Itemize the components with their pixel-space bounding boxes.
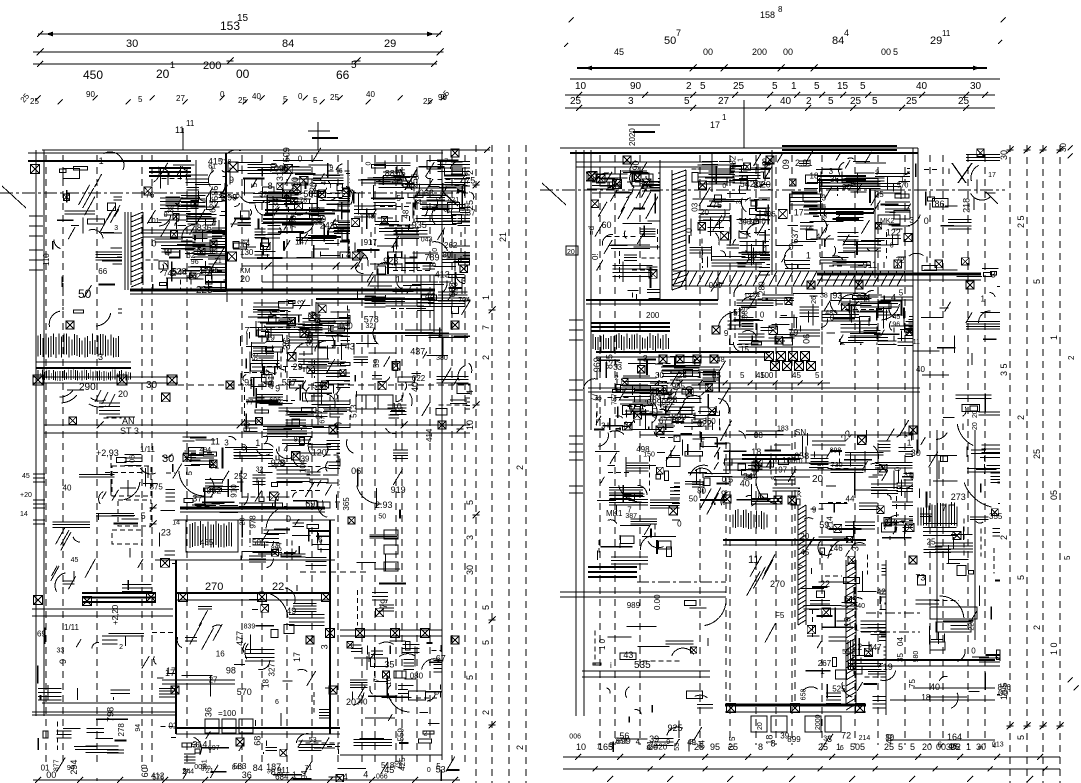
svg-text:2020: 2020 [628, 128, 637, 146]
svg-text:2: 2 [481, 355, 491, 360]
svg-text:1: 1 [806, 251, 811, 261]
svg-text:006: 006 [569, 733, 581, 740]
svg-text:20: 20 [700, 208, 709, 217]
svg-text:90: 90 [86, 90, 95, 99]
svg-text:100: 100 [708, 280, 722, 289]
svg-text:17: 17 [166, 666, 176, 676]
svg-text:5: 5 [728, 736, 737, 741]
svg-text:30: 30 [655, 371, 664, 380]
svg-text:9: 9 [58, 659, 68, 664]
svg-text:686: 686 [210, 186, 220, 201]
svg-text:360: 360 [702, 417, 716, 426]
svg-text:45: 45 [614, 47, 624, 57]
svg-text:KM: KM [240, 268, 251, 275]
svg-text:4: 4 [321, 181, 328, 185]
svg-text:29: 29 [384, 38, 396, 50]
svg-text:01: 01 [152, 218, 160, 225]
svg-text:022: 022 [412, 374, 426, 383]
svg-text:4: 4 [183, 768, 190, 772]
svg-text:146: 146 [607, 180, 622, 190]
svg-text:9: 9 [875, 169, 879, 176]
svg-text:F5: F5 [775, 611, 785, 620]
svg-text:18: 18 [262, 679, 271, 688]
svg-text:899: 899 [787, 735, 801, 744]
svg-text:89: 89 [271, 546, 279, 553]
svg-text:30: 30 [162, 453, 174, 465]
svg-text:22: 22 [852, 642, 862, 652]
svg-text:044: 044 [857, 293, 871, 302]
svg-text:5: 5 [860, 81, 866, 92]
svg-text:252: 252 [234, 472, 248, 481]
svg-text:494: 494 [199, 447, 211, 454]
svg-text:5: 5 [481, 640, 491, 645]
svg-text:080: 080 [410, 671, 424, 680]
svg-text:59: 59 [372, 358, 381, 367]
svg-text:30: 30 [126, 38, 138, 50]
svg-text:32: 32 [256, 466, 264, 473]
svg-text:0: 0 [830, 313, 835, 322]
svg-text:0: 0 [677, 520, 682, 529]
svg-text:MK1: MK1 [606, 509, 623, 518]
svg-text:40: 40 [63, 484, 72, 493]
svg-text:110: 110 [42, 253, 51, 266]
svg-text:5: 5 [465, 675, 475, 680]
svg-text:25: 25 [1032, 449, 1042, 459]
svg-text:0: 0 [152, 239, 157, 249]
svg-text:0: 0 [140, 764, 149, 769]
svg-text:2: 2 [1067, 355, 1076, 360]
svg-text:10: 10 [795, 458, 803, 465]
svg-text:57: 57 [259, 192, 267, 199]
svg-text:01: 01 [41, 763, 50, 772]
svg-text:25: 25 [927, 537, 936, 546]
svg-text:77: 77 [246, 400, 254, 407]
svg-text:25: 25 [570, 96, 582, 107]
svg-text:5: 5 [684, 96, 690, 107]
svg-text:5: 5 [740, 371, 745, 380]
svg-text:9: 9 [666, 739, 670, 746]
svg-text:00: 00 [881, 47, 891, 57]
svg-text:7: 7 [942, 503, 947, 513]
svg-text:11: 11 [175, 125, 184, 135]
svg-text:771: 771 [327, 319, 337, 334]
svg-text:3: 3 [267, 770, 274, 774]
svg-text:5: 5 [910, 742, 915, 752]
svg-text:25: 25 [728, 742, 738, 752]
svg-text:i: i [610, 661, 612, 670]
svg-text:5: 5 [676, 376, 681, 386]
svg-text:20: 20 [800, 532, 809, 541]
svg-text:535: 535 [634, 660, 651, 671]
svg-text:15: 15 [816, 461, 825, 470]
svg-text:53: 53 [436, 765, 446, 775]
svg-text:1 0: 1 0 [1049, 642, 1059, 655]
svg-text:164: 164 [947, 732, 962, 742]
svg-text:25: 25 [818, 742, 828, 752]
svg-text:25: 25 [950, 742, 960, 752]
svg-text:2 5: 2 5 [1016, 215, 1026, 228]
svg-text:40: 40 [930, 682, 940, 692]
svg-text:34: 34 [738, 217, 747, 226]
svg-text:1: 1 [481, 295, 491, 300]
svg-text:3: 3 [822, 194, 827, 203]
svg-text:8: 8 [778, 5, 783, 14]
svg-text:6: 6 [415, 174, 419, 181]
svg-text:25: 25 [330, 93, 339, 102]
svg-text:2: 2 [424, 731, 428, 738]
svg-text:45: 45 [792, 371, 801, 380]
svg-text:413: 413 [435, 270, 450, 280]
svg-text:20: 20 [240, 274, 250, 284]
svg-text:40: 40 [916, 81, 928, 92]
svg-text:1 0: 1 0 [598, 638, 607, 650]
svg-text:27: 27 [176, 94, 185, 103]
svg-text:2: 2 [999, 535, 1009, 540]
svg-text:583: 583 [233, 762, 247, 771]
svg-text:183: 183 [649, 394, 661, 401]
svg-text:45: 45 [71, 557, 79, 564]
svg-text:3: 3 [114, 225, 118, 232]
svg-text:5: 5 [138, 95, 143, 104]
svg-text:0: 0 [298, 92, 303, 101]
svg-text:05: 05 [875, 190, 884, 199]
svg-text:9: 9 [275, 384, 280, 394]
svg-text:278: 278 [117, 723, 126, 737]
svg-text:0: 0 [685, 386, 695, 391]
svg-text:3: 3 [829, 167, 834, 176]
svg-text:013: 013 [992, 741, 1004, 748]
svg-text:96: 96 [892, 322, 900, 329]
svg-text:09: 09 [781, 159, 791, 169]
svg-text:75: 75 [465, 175, 475, 185]
svg-text:1: 1 [722, 113, 727, 122]
svg-text:11: 11 [942, 29, 951, 38]
svg-text:2: 2 [686, 81, 692, 92]
svg-text:+2,20: +2,20 [111, 604, 120, 625]
svg-text:978: 978 [248, 515, 257, 529]
svg-text:50: 50 [664, 35, 676, 47]
svg-text:6: 6 [595, 396, 604, 401]
svg-text:2000: 2000 [815, 714, 822, 730]
svg-text:86: 86 [935, 199, 945, 209]
svg-text:91: 91 [209, 461, 219, 471]
svg-text:4: 4 [636, 738, 641, 747]
svg-text:25: 25 [423, 97, 432, 106]
svg-text:69: 69 [37, 629, 46, 638]
svg-text:6: 6 [890, 243, 894, 250]
svg-text:43: 43 [623, 650, 633, 660]
svg-text:1: 1 [170, 60, 175, 70]
svg-text:30: 30 [146, 380, 158, 391]
svg-text:8: 8 [771, 739, 776, 749]
svg-text:4: 4 [398, 762, 403, 771]
svg-text:10: 10 [576, 742, 586, 752]
svg-text:40: 40 [252, 92, 261, 101]
svg-text:5: 5 [185, 471, 194, 476]
svg-text:183: 183 [777, 425, 789, 432]
svg-text:84: 84 [832, 35, 844, 47]
svg-text:207: 207 [346, 697, 361, 707]
svg-text:53: 53 [309, 737, 317, 744]
svg-text:3 5: 3 5 [999, 363, 1009, 376]
svg-text:5: 5 [872, 96, 878, 107]
svg-text:14: 14 [172, 519, 180, 526]
svg-text:56: 56 [619, 731, 629, 741]
svg-text:4: 4 [816, 233, 820, 240]
svg-text:730: 730 [831, 462, 843, 469]
svg-text:05: 05 [1049, 490, 1059, 500]
svg-text:2: 2 [481, 710, 491, 715]
svg-text:2: 2 [615, 375, 619, 382]
svg-text:37: 37 [278, 768, 285, 776]
svg-text:570: 570 [237, 687, 252, 697]
svg-text:0: 0 [760, 311, 765, 320]
svg-text:00: 00 [936, 742, 946, 752]
svg-text:14: 14 [20, 511, 28, 518]
svg-text:30: 30 [465, 565, 475, 575]
svg-text:20: 20 [648, 742, 658, 752]
svg-text:935: 935 [412, 220, 427, 230]
svg-text:1: 1 [820, 667, 825, 676]
svg-text:5: 5 [351, 60, 357, 71]
svg-text:=d: =d [587, 226, 596, 235]
svg-text:3: 3 [909, 216, 914, 225]
svg-text:19: 19 [883, 662, 893, 672]
svg-text:37: 37 [904, 472, 912, 479]
svg-text:73: 73 [915, 573, 925, 583]
svg-text:=100: =100 [218, 709, 237, 718]
svg-text:25: 25 [906, 96, 918, 107]
svg-text:72: 72 [841, 731, 851, 741]
svg-text:477: 477 [235, 631, 245, 646]
svg-text:4: 4 [844, 28, 849, 38]
svg-text:40: 40 [366, 90, 375, 99]
svg-text:27: 27 [209, 675, 218, 684]
svg-text:0: 0 [427, 767, 431, 774]
svg-text:218: 218 [962, 198, 972, 213]
svg-text:130: 130 [240, 248, 254, 257]
svg-text:1: 1 [791, 81, 797, 92]
svg-text:21: 21 [498, 232, 508, 242]
svg-text:355: 355 [989, 512, 1003, 521]
svg-text:59: 59 [819, 520, 829, 530]
svg-text:5: 5 [465, 500, 475, 505]
svg-text:1: 1 [966, 742, 971, 752]
svg-text:5: 5 [899, 288, 904, 297]
svg-text:33: 33 [265, 370, 272, 378]
svg-text:32: 32 [366, 323, 374, 330]
svg-text:570: 570 [897, 183, 909, 190]
svg-text:3: 3 [465, 535, 475, 540]
svg-text:42: 42 [877, 587, 886, 596]
svg-text:30: 30 [976, 742, 986, 752]
svg-text:3: 3 [601, 422, 606, 431]
svg-text:2: 2 [515, 465, 525, 470]
svg-text:925: 925 [668, 723, 683, 733]
svg-text:66: 66 [336, 68, 350, 82]
svg-text:45: 45 [22, 473, 30, 480]
svg-text:1/11: 1/11 [64, 623, 80, 632]
svg-text:150: 150 [643, 452, 655, 459]
svg-text:25: 25 [238, 96, 247, 105]
svg-text:415: 415 [208, 157, 223, 167]
svg-text:0: 0 [432, 248, 439, 252]
svg-text:1: 1 [340, 186, 344, 193]
svg-text:11: 11 [186, 119, 195, 128]
svg-text:30: 30 [970, 81, 982, 92]
svg-text:559: 559 [397, 728, 406, 742]
svg-text:1/11: 1/11 [140, 445, 156, 454]
svg-text:25: 25 [733, 81, 745, 92]
svg-text:4: 4 [190, 769, 194, 776]
svg-text:78: 78 [299, 198, 307, 205]
svg-text:365: 365 [342, 497, 351, 511]
svg-text:2: 2 [1016, 415, 1026, 420]
svg-text:158: 158 [760, 10, 775, 20]
svg-text:2: 2 [1032, 625, 1042, 630]
svg-text:72: 72 [896, 256, 905, 265]
svg-text:60: 60 [602, 220, 612, 230]
svg-text:1: 1 [854, 624, 859, 633]
svg-text:19: 19 [266, 334, 275, 343]
svg-text:658: 658 [801, 689, 808, 701]
svg-text:8: 8 [268, 181, 273, 191]
svg-text:214: 214 [859, 735, 871, 742]
svg-text:+2,93: +2,93 [96, 448, 119, 458]
svg-text:20: 20 [812, 474, 824, 485]
svg-text:17: 17 [292, 652, 302, 662]
svg-text:15: 15 [837, 81, 849, 92]
svg-text:5: 5 [1016, 735, 1026, 740]
svg-text:97: 97 [778, 465, 787, 474]
svg-text:0: 0 [797, 564, 804, 568]
svg-text:5: 5 [481, 605, 491, 610]
svg-text:682: 682 [728, 155, 737, 169]
svg-text:20: 20 [757, 722, 764, 730]
svg-text:0: 0 [971, 646, 976, 655]
svg-text:846: 846 [998, 683, 1012, 692]
svg-text:5: 5 [814, 81, 820, 92]
svg-text:020: 020 [756, 180, 771, 190]
svg-text:20: 20 [118, 389, 128, 399]
svg-text:544: 544 [172, 267, 187, 277]
svg-text:40: 40 [780, 96, 792, 107]
svg-text:2: 2 [119, 644, 123, 651]
svg-text:1: 1 [981, 294, 986, 303]
svg-text:3: 3 [320, 644, 330, 649]
svg-text:33: 33 [57, 648, 65, 655]
svg-text:K: K [797, 492, 802, 499]
svg-text:980: 980 [913, 651, 920, 663]
svg-text:8: 8 [758, 742, 763, 752]
svg-text:44: 44 [846, 495, 855, 504]
svg-text:637: 637 [790, 229, 800, 244]
svg-text:3: 3 [224, 439, 229, 448]
svg-text:525: 525 [832, 684, 846, 693]
svg-text:5: 5 [1016, 575, 1026, 580]
svg-text:0!: 0! [591, 253, 600, 260]
svg-text:2: 2 [515, 745, 525, 750]
svg-text:043: 043 [421, 236, 433, 243]
svg-text:9: 9 [724, 329, 729, 338]
svg-text:509: 509 [281, 147, 291, 162]
svg-text:19: 19 [842, 617, 852, 627]
svg-text:513: 513 [349, 404, 358, 418]
svg-text:39: 39 [780, 732, 789, 741]
svg-text:64: 64 [313, 314, 323, 324]
svg-text:5: 5 [1032, 279, 1042, 284]
svg-text:8: 8 [429, 262, 438, 267]
svg-text:294: 294 [69, 760, 79, 775]
svg-text:06: 06 [351, 466, 361, 476]
svg-text:6: 6 [434, 691, 441, 695]
svg-text:917: 917 [364, 238, 378, 247]
svg-text:25: 25 [884, 742, 894, 752]
svg-text:273: 273 [951, 492, 966, 502]
svg-text:06: 06 [129, 455, 136, 463]
svg-text:40: 40 [916, 365, 925, 374]
svg-text:30: 30 [1059, 143, 1068, 152]
svg-text:414: 414 [425, 428, 434, 442]
svg-text:200: 200 [752, 47, 767, 57]
svg-text:5: 5 [893, 47, 898, 57]
svg-text:0: 0 [286, 514, 291, 524]
svg-text:5: 5 [141, 511, 146, 521]
svg-text:5: 5 [828, 96, 834, 107]
svg-text:4: 4 [363, 770, 368, 780]
svg-text:7: 7 [676, 28, 681, 38]
svg-text:165: 165 [598, 742, 613, 752]
svg-text:381: 381 [305, 332, 315, 347]
svg-text:1: 1 [836, 742, 841, 752]
svg-text:7: 7 [444, 159, 448, 166]
svg-text:06: 06 [801, 334, 811, 344]
svg-text:11: 11 [748, 554, 759, 566]
svg-text:5: 5 [700, 81, 706, 92]
svg-text:5: 5 [815, 371, 820, 380]
svg-text:5: 5 [313, 96, 318, 105]
svg-text:00: 00 [236, 67, 250, 81]
svg-text:03: 03 [691, 202, 700, 211]
svg-text:0: 0 [220, 90, 225, 99]
svg-text:74: 74 [804, 225, 812, 232]
svg-text:7: 7 [627, 506, 632, 515]
svg-text:910: 910 [230, 484, 239, 498]
svg-text:421: 421 [448, 197, 460, 204]
svg-text:0: 0 [746, 475, 755, 480]
svg-text:43: 43 [345, 342, 355, 352]
svg-text:798: 798 [106, 707, 116, 722]
svg-text:50: 50 [689, 495, 698, 504]
svg-text:18: 18 [751, 447, 761, 457]
svg-text:7: 7 [245, 326, 250, 336]
svg-text:0: 0 [365, 162, 372, 166]
svg-text:2.93: 2.93 [375, 500, 393, 510]
svg-text:1: 1 [255, 438, 260, 448]
svg-text:3: 3 [461, 277, 466, 286]
svg-text:25: 25 [30, 97, 39, 106]
svg-text:26: 26 [811, 296, 818, 304]
svg-text:7: 7 [481, 325, 491, 330]
svg-text:79: 79 [379, 599, 389, 609]
svg-text:29: 29 [930, 35, 942, 47]
svg-text:30: 30 [999, 150, 1009, 160]
svg-text:02: 02 [169, 722, 178, 731]
svg-text:39: 39 [167, 204, 176, 213]
svg-text:SN: SN [795, 428, 806, 437]
svg-text:200: 200 [203, 60, 221, 72]
svg-text:96: 96 [191, 259, 199, 266]
